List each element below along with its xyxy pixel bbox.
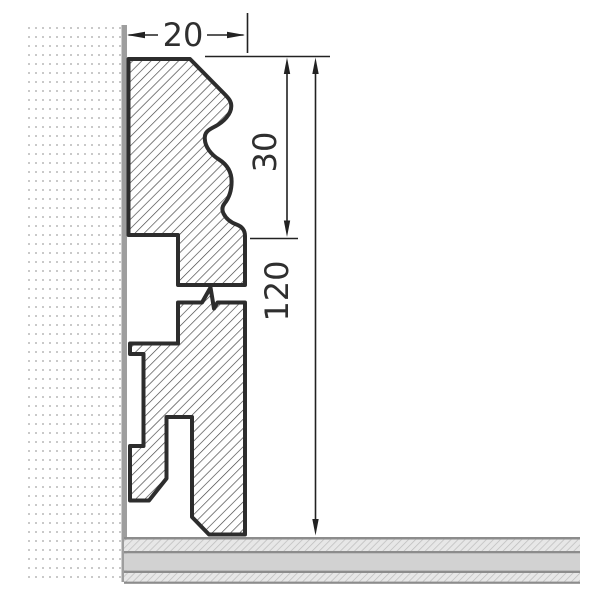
dim-upper-height-label: 30 <box>246 132 284 173</box>
skirting-profile-upper <box>129 59 246 285</box>
floor-border-line <box>124 551 580 553</box>
technical-drawing-page: 20 30 120 <box>0 0 604 604</box>
floor-top-border <box>124 537 580 540</box>
skirting-profile-lower <box>130 288 245 535</box>
dim-top-width-label: 20 <box>163 16 204 54</box>
arrow-up-icon <box>312 58 318 75</box>
floor-core-layer <box>124 553 580 570</box>
wall-surface-strip <box>122 25 128 582</box>
dimension-upper-height: 30 <box>246 58 298 239</box>
arrow-right-icon <box>227 32 245 39</box>
dim-total-height-label: 120 <box>258 260 296 321</box>
arrow-up-icon <box>284 58 290 75</box>
drawing-canvas: 20 30 120 <box>0 0 604 604</box>
floor-underlay-top <box>124 540 580 551</box>
wall-texture <box>27 25 122 582</box>
floor-border-line <box>124 571 580 573</box>
floor-bottom-border <box>124 582 580 584</box>
arrow-down-icon <box>312 519 318 536</box>
floor-underlay-bottom <box>124 573 580 582</box>
arrow-down-icon <box>284 221 290 238</box>
arrow-left-icon <box>127 32 145 39</box>
dimension-total-height: 120 <box>258 58 319 536</box>
floor <box>124 537 580 584</box>
dimension-top-width: 20 <box>127 13 248 54</box>
